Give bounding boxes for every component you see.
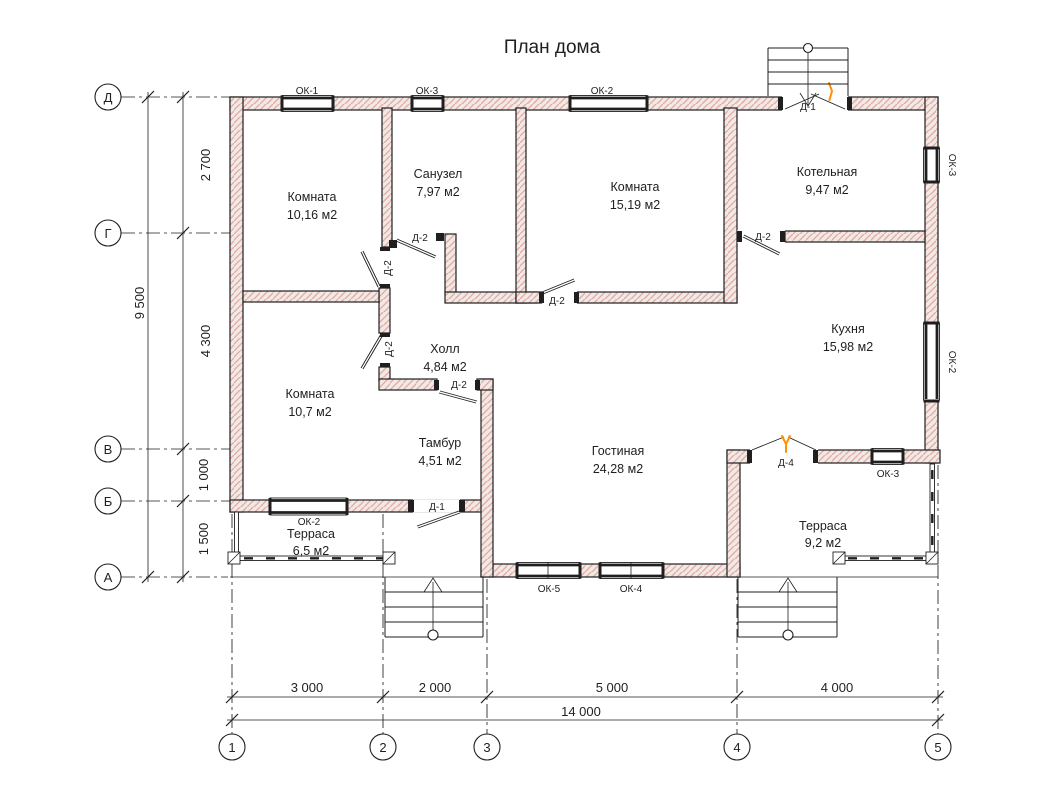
room-label-terrace-east: Терраса 9,2 м2 — [799, 519, 847, 550]
room-area: 4,51 м2 — [418, 454, 461, 468]
room-label-tambour: Тамбур 4,51 м2 — [418, 436, 461, 468]
wall-hall-west-upper — [379, 288, 390, 333]
room-area: 10,7 м2 — [288, 405, 331, 419]
dimension-label-bottom-total: 14 000 — [561, 704, 601, 719]
door-d1-tambour-south: Д-1 — [408, 500, 465, 529]
room-area: 9,47 м2 — [805, 183, 848, 197]
window-label: ОК-4 — [620, 584, 643, 595]
axis-label-col: 5 — [934, 740, 941, 755]
window-label: ОК-3 — [877, 469, 900, 480]
dimension-label: 1 000 — [196, 459, 211, 492]
dimension-lines-left: 9 500 2 700 4 300 1 000 1 500 — [132, 91, 213, 583]
door-d2-boiler-room: Д-2 — [737, 231, 785, 256]
axis-label-row: Д — [104, 90, 113, 105]
door-label: Д-2 — [412, 233, 428, 244]
window-ok3-east: ОК-3 — [924, 147, 958, 184]
floor-plan-page: План дома 9 500 2 700 4 300 1 000 1 500 — [0, 0, 1049, 789]
door-label: Д-2 — [451, 380, 467, 391]
window-ok5-living-south: ОК-5 — [516, 563, 582, 596]
window-ok2-east: ОК-2 — [924, 322, 958, 403]
wall-bedroom1-bathroom — [382, 108, 392, 247]
room-area: 6,5 м2 — [293, 544, 329, 558]
room-label-bedroom2: Комната 15,19 м2 — [610, 180, 660, 212]
window-ok2-terrace-south: ОК-2 — [269, 498, 349, 528]
room-label-bedroom3: Комната 10,7 м2 — [286, 387, 335, 419]
room-area: 7,97 м2 — [416, 185, 459, 199]
door-d2-tambour: Д-2 — [434, 380, 480, 403]
window-label: ОК-1 — [296, 86, 319, 97]
wall-living-room-east — [727, 450, 740, 577]
wall-bathroom-bedroom2 — [516, 108, 526, 303]
room-name: Терраса — [799, 519, 847, 533]
room-label-hall: Холл 4,84 м2 — [423, 342, 466, 374]
room-name: Кухня — [831, 322, 864, 336]
door-d1-main-entrance-north: Д-1 — [778, 83, 852, 113]
window-ok3-kitchen-south: ОК-3 — [871, 449, 905, 481]
room-label-bathroom: Санузел 7,97 м2 — [414, 167, 463, 199]
door-label: Д-2 — [383, 260, 394, 276]
axis-label-col: 4 — [733, 740, 740, 755]
dimension-label: 4 300 — [198, 325, 213, 358]
stairs-direction-origin — [428, 630, 438, 640]
room-label-living-room: Гостиная 24,28 м2 — [592, 444, 644, 476]
dimension-label: 2 000 — [419, 680, 452, 695]
wall-tambour-north — [379, 379, 437, 390]
room-label-bedroom1: Комната 10,16 м2 — [287, 190, 337, 222]
wall-bathroom-south-vertical — [445, 234, 456, 294]
room-label-terrace-west: Терраса 6,5 м2 — [287, 527, 335, 558]
stairs-south-terrace — [738, 577, 837, 640]
axis-label-col: 3 — [483, 740, 490, 755]
door-label: Д-1 — [429, 502, 445, 513]
page-title: План дома — [504, 37, 601, 58]
stairs-direction-origin — [783, 630, 793, 640]
door-label: Д-2 — [549, 296, 565, 307]
room-name: Комната — [286, 387, 335, 401]
dimension-label: 2 700 — [198, 149, 213, 182]
window-label: ОК-5 — [538, 584, 561, 595]
room-name: Санузел — [414, 167, 463, 181]
room-label-boiler-room: Котельная 9,47 м2 — [797, 165, 858, 197]
room-name: Тамбур — [419, 436, 461, 450]
room-name: Холл — [430, 342, 459, 356]
room-area: 15,19 м2 — [610, 198, 660, 212]
window-ok1-north: ОК-1 — [281, 86, 335, 112]
door-d2-bedroom3: Д-2 — [361, 333, 395, 369]
stairs-south-porch — [385, 577, 483, 640]
dimension-label: 5 000 — [596, 680, 629, 695]
window-label: ОК-2 — [946, 351, 957, 374]
room-name: Котельная — [797, 165, 858, 179]
axis-label-row: Г — [104, 226, 111, 241]
door-d2-bedroom1: Д-2 — [361, 247, 394, 288]
room-area: 15,98 м2 — [823, 340, 873, 354]
door-d2-bedroom2: Д-2 — [539, 279, 579, 307]
room-area: 10,16 м2 — [287, 208, 337, 222]
dimension-label: 4 000 — [821, 680, 854, 695]
window-label: ОК-3 — [416, 86, 439, 97]
wall-living-room-west — [481, 379, 493, 577]
dimension-label: 1 500 — [196, 523, 211, 556]
dimension-ticks-left — [142, 91, 189, 583]
room-name: Терраса — [287, 527, 335, 541]
room-name: Гостиная — [592, 444, 644, 458]
door-d4-kitchen-terrace: Д-4 — [747, 436, 818, 469]
axis-label-row: В — [104, 442, 113, 457]
dimension-lines-bottom: 3 000 2 000 5 000 4 000 14 000 — [226, 680, 944, 726]
door-label: Д-2 — [755, 232, 771, 243]
wall-boiler-south — [785, 231, 925, 242]
axis-label-row: А — [104, 570, 113, 585]
window-label: ОК-3 — [946, 154, 957, 177]
room-name: Комната — [288, 190, 337, 204]
dimension-label: 3 000 — [291, 680, 324, 695]
room-label-kitchen: Кухня 15,98 м2 — [823, 322, 873, 354]
stairs-direction-origin — [804, 44, 813, 53]
room-area: 9,2 м2 — [805, 536, 841, 550]
axis-label-col: 1 — [228, 740, 235, 755]
door-d2-bathroom: Д-2 — [389, 233, 444, 258]
room-area: 4,84 м2 — [423, 360, 466, 374]
room-labels: Комната 10,16 м2 Санузел 7,97 м2 Комната… — [286, 165, 874, 558]
room-name: Комната — [611, 180, 660, 194]
door-label: Д-4 — [778, 458, 794, 469]
door-label: Д-2 — [384, 341, 395, 357]
room-area: 24,28 м2 — [593, 462, 643, 476]
window-ok3-north: ОК-3 — [411, 86, 445, 112]
wall-exterior-west — [230, 97, 243, 512]
window-ok2-north: ОК-2 — [569, 86, 649, 112]
axis-label-col: 2 — [379, 740, 386, 755]
floor-plan-drawing: План дома 9 500 2 700 4 300 1 000 1 500 — [0, 0, 1049, 789]
wall-bedrooms-divider — [243, 291, 379, 302]
axis-label-row: Б — [104, 494, 113, 509]
window-label: ОК-2 — [591, 86, 614, 97]
window-ok4-living-south: ОК-4 — [599, 563, 665, 596]
wall-bedroom2-south-stub — [516, 292, 542, 303]
wall-bedroom2-south — [577, 292, 737, 303]
wall-bedroom2-boiler — [724, 108, 737, 303]
dimension-label-left-total: 9 500 — [132, 287, 147, 320]
